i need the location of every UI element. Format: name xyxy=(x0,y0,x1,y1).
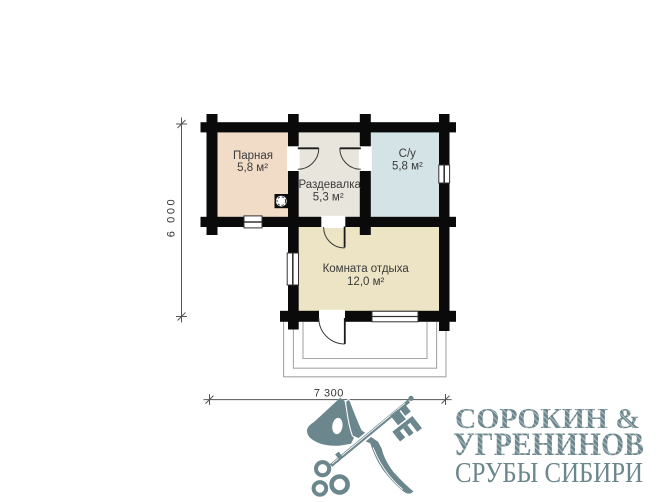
svg-text:5,8 м²: 5,8 м² xyxy=(237,162,268,174)
svg-text:7 300: 7 300 xyxy=(314,388,344,400)
svg-text:Комната отдыха: Комната отдыха xyxy=(323,263,410,275)
svg-text:12,0 м²: 12,0 м² xyxy=(347,276,384,288)
svg-text:Раздевалка: Раздевалка xyxy=(298,179,361,191)
svg-text:Парная: Парная xyxy=(233,150,273,162)
svg-text:СРУБЫ СИБИРИ: СРУБЫ СИБИРИ xyxy=(455,458,643,489)
svg-text:5,8 м²: 5,8 м² xyxy=(392,160,423,172)
svg-text:6 000: 6 000 xyxy=(166,197,178,238)
svg-text:С/у: С/у xyxy=(399,148,417,160)
svg-text:5,3 м²: 5,3 м² xyxy=(313,191,344,203)
